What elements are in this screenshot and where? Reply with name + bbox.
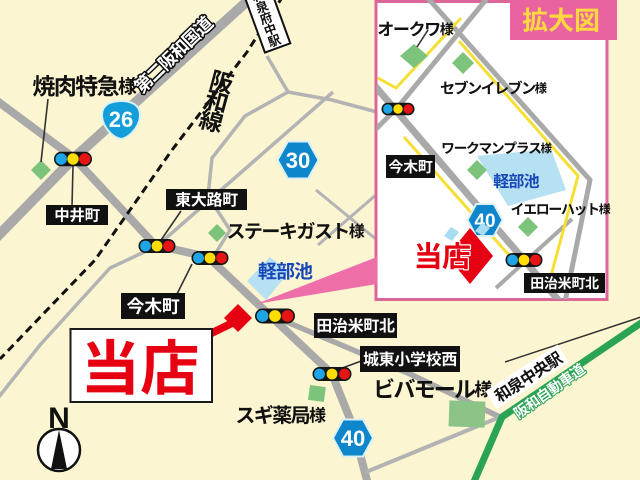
svg-text:26: 26 <box>109 107 133 132</box>
svg-text:40: 40 <box>341 426 365 451</box>
svg-text:30: 30 <box>286 148 310 173</box>
svg-text:N: N <box>48 402 70 435</box>
